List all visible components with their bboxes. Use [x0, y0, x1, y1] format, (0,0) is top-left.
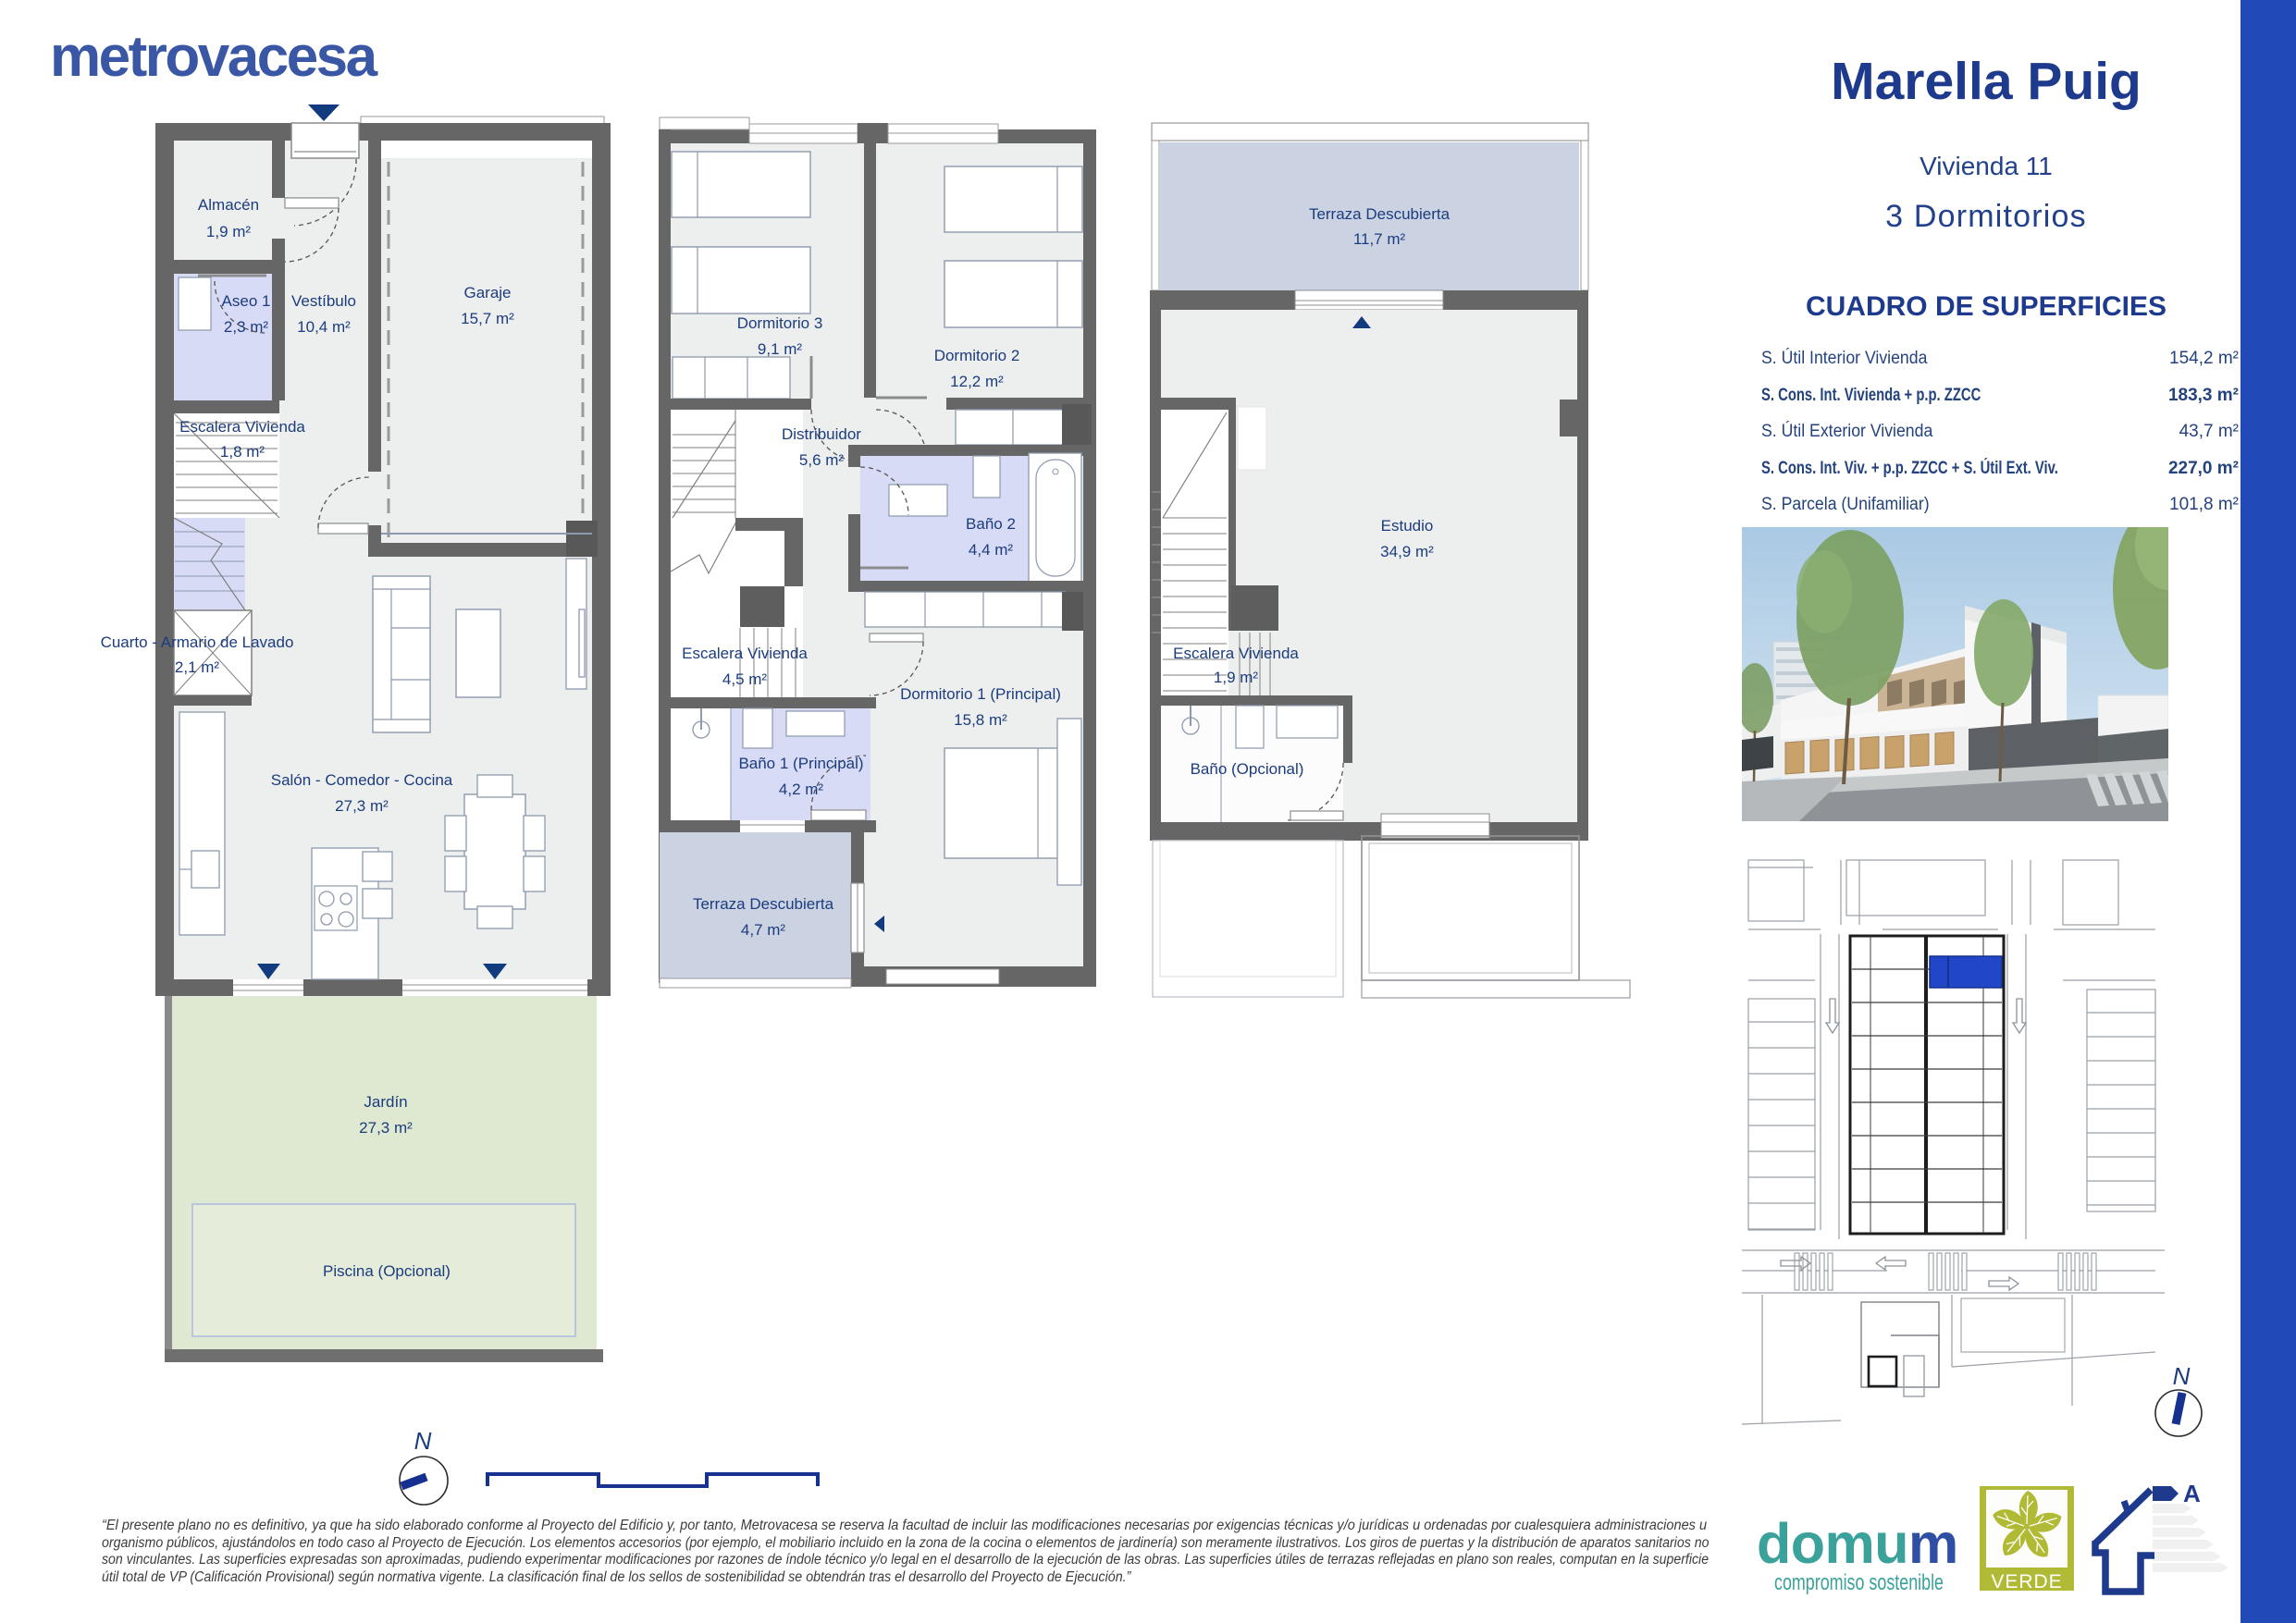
svg-text:Dormitorio 3: Dormitorio 3: [737, 314, 823, 332]
svg-text:Escalera Vivienda: Escalera Vivienda: [179, 418, 305, 436]
svg-text:12,2 m²: 12,2 m²: [950, 373, 1004, 390]
svg-text:34,9 m²: 34,9 m²: [1380, 543, 1434, 560]
svg-text:4,7 m²: 4,7 m²: [741, 921, 786, 939]
svg-text:Vestíbulo: Vestíbulo: [291, 292, 356, 310]
svg-text:27,3 m²: 27,3 m²: [335, 797, 389, 815]
svg-text:15,7 m²: 15,7 m²: [461, 310, 514, 327]
svg-text:1,8 m²: 1,8 m²: [220, 443, 265, 461]
svg-text:2,1 m²: 2,1 m²: [175, 658, 220, 676]
svg-text:4,4 m²: 4,4 m²: [969, 541, 1014, 559]
svg-text:4,5 m²: 4,5 m²: [722, 670, 768, 688]
svg-text:Piscina (Opcional): Piscina (Opcional): [323, 1262, 451, 1280]
svg-text:Distribuidor: Distribuidor: [782, 425, 861, 443]
svg-text:Terraza Descubierta: Terraza Descubierta: [1309, 205, 1450, 223]
svg-text:5,6 m²: 5,6 m²: [799, 451, 845, 469]
svg-text:Salón - Comedor - Cocina: Salón - Comedor - Cocina: [271, 771, 453, 789]
svg-text:9,1 m²: 9,1 m²: [758, 340, 803, 358]
svg-text:11,7 m²: 11,7 m²: [1353, 230, 1406, 248]
svg-text:domum: domum: [1757, 1512, 1958, 1575]
svg-text:1,9 m²: 1,9 m²: [206, 223, 252, 240]
svg-text:VERDE: VERDE: [1991, 1571, 2062, 1592]
svg-text:Escalera Vivienda: Escalera Vivienda: [1173, 645, 1299, 662]
svg-text:A: A: [2183, 1480, 2201, 1507]
svg-text:N: N: [2173, 1362, 2191, 1390]
svg-text:Dormitorio 2: Dormitorio 2: [934, 347, 1020, 364]
svg-text:Dormitorio 1 (Principal): Dormitorio 1 (Principal): [900, 685, 1061, 703]
svg-text:10,4 m²: 10,4 m²: [297, 318, 351, 336]
svg-text:15,8 m²: 15,8 m²: [954, 711, 1007, 729]
svg-text:Aseo 1: Aseo 1: [222, 292, 271, 310]
svg-text:compromiso sostenible: compromiso sostenible: [1774, 1570, 1944, 1595]
svg-text:Almacén: Almacén: [198, 196, 259, 214]
svg-text:N: N: [414, 1427, 432, 1455]
svg-text:Jardín: Jardín: [364, 1093, 407, 1111]
svg-text:27,3 m²: 27,3 m²: [359, 1119, 413, 1137]
svg-text:Baño (Opcional): Baño (Opcional): [1191, 760, 1304, 778]
svg-text:4,2 m²: 4,2 m²: [779, 781, 824, 798]
svg-text:Cuarto - Armario de Lavado: Cuarto - Armario de Lavado: [101, 633, 294, 651]
svg-text:Baño 1 (Principal): Baño 1 (Principal): [738, 755, 863, 772]
svg-text:Garaje: Garaje: [463, 284, 511, 301]
svg-text:Baño 2: Baño 2: [966, 515, 1016, 533]
svg-text:2,3 m²: 2,3 m²: [224, 318, 269, 336]
svg-text:1,9 m²: 1,9 m²: [1214, 669, 1259, 686]
svg-text:Escalera Vivienda: Escalera Vivienda: [682, 645, 808, 662]
svg-text:Terraza Descubierta: Terraza Descubierta: [693, 895, 834, 913]
svg-text:Estudio: Estudio: [1381, 517, 1434, 535]
